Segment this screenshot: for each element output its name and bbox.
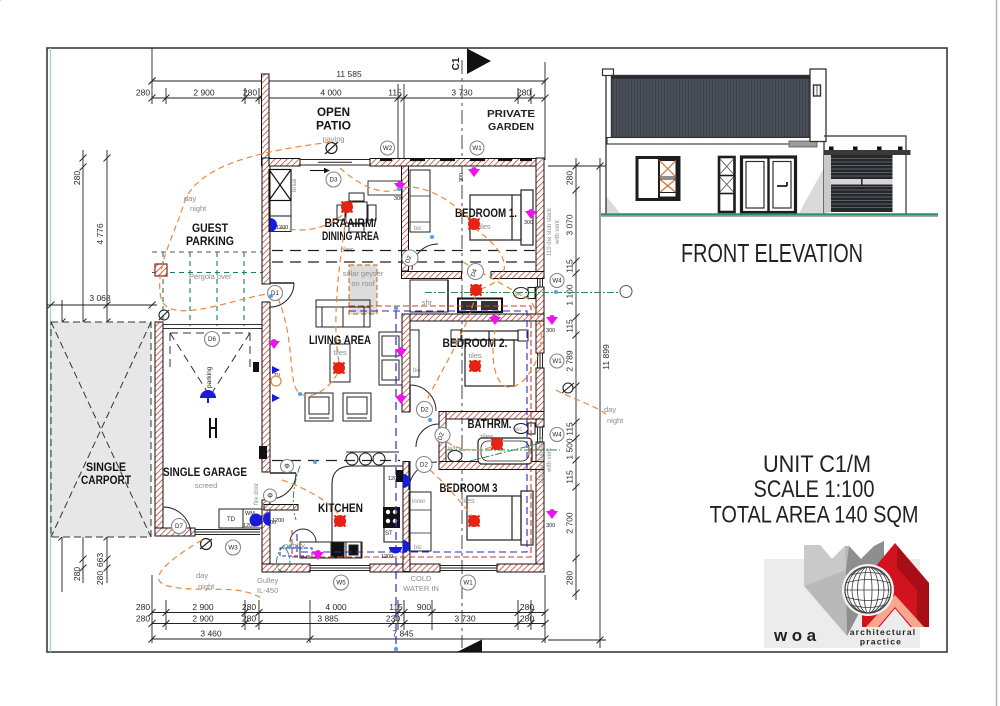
svg-text:W4: W4 <box>552 432 562 439</box>
svg-text:IL-450: IL-450 <box>257 586 278 595</box>
svg-text:TD: TD <box>227 517 236 523</box>
svg-text:280: 280 <box>136 88 150 98</box>
svg-text:4 000: 4 000 <box>320 88 342 98</box>
svg-text:115: 115 <box>565 319 575 333</box>
svg-text:1200: 1200 <box>276 225 288 231</box>
svg-text:screed: screed <box>195 481 218 490</box>
svg-text:110 dia stub stack: 110 dia stub stack <box>547 207 553 256</box>
svg-text:W3: W3 <box>228 545 238 552</box>
svg-text:day: day <box>196 571 208 580</box>
svg-text:4 000: 4 000 <box>325 602 347 612</box>
svg-text:115: 115 <box>388 88 402 98</box>
svg-text:280: 280 <box>517 88 531 98</box>
svg-text:bic: bic <box>413 368 421 374</box>
svg-text:115: 115 <box>565 259 575 273</box>
svg-text:280: 280 <box>520 613 534 623</box>
svg-text:PATIO: PATIO <box>316 119 351 133</box>
svg-text:BATHRM.: BATHRM. <box>468 417 512 431</box>
svg-text:pantry: pantry <box>284 541 305 550</box>
svg-text:1 500: 1 500 <box>565 438 575 460</box>
svg-text:280: 280 <box>242 602 256 612</box>
svg-text:300: 300 <box>459 173 465 182</box>
svg-text:OPEN: OPEN <box>317 105 350 119</box>
svg-text:SINGLE: SINGLE <box>86 460 126 474</box>
svg-text:CARPORT: CARPORT <box>81 473 132 487</box>
svg-text:1 100: 1 100 <box>565 284 575 306</box>
svg-text:D3: D3 <box>330 177 338 184</box>
svg-text:BEDROOM 1.: BEDROOM 1. <box>455 206 517 220</box>
svg-text:DINING AREA: DINING AREA <box>322 229 379 243</box>
svg-text:1200: 1200 <box>272 518 284 524</box>
svg-text:GUEST: GUEST <box>192 221 229 235</box>
svg-text:3 068: 3 068 <box>89 293 111 303</box>
svg-text:D2: D2 <box>420 462 428 469</box>
svg-text:architectural: architectural <box>850 627 917 637</box>
svg-text:bic: bic <box>414 545 422 551</box>
svg-text:practice: practice <box>860 637 902 647</box>
svg-text:3 070: 3 070 <box>565 214 575 236</box>
svg-text:W5: W5 <box>336 580 346 587</box>
svg-text:Pergola over: Pergola over <box>189 272 232 281</box>
svg-text:230: 230 <box>386 613 400 623</box>
svg-text:D2: D2 <box>421 407 429 414</box>
svg-text:W1: W1 <box>463 580 473 587</box>
svg-text:wc: wc <box>514 427 522 433</box>
svg-text:tiles: tiles <box>468 351 482 360</box>
svg-text:280: 280 <box>136 613 150 623</box>
svg-text:11 899: 11 899 <box>601 344 611 370</box>
svg-text:115: 115 <box>565 470 575 484</box>
svg-text:Φ: Φ <box>267 493 273 500</box>
svg-text:with vent: with vent <box>547 448 553 473</box>
svg-text:3 730: 3 730 <box>451 88 473 98</box>
svg-text:FRONT ELEVATION: FRONT ELEVATION <box>681 238 863 268</box>
svg-text:BRAAIRM/: BRAAIRM/ <box>325 216 378 230</box>
svg-text:1200: 1200 <box>243 523 255 529</box>
svg-text:with vent: with vent <box>555 220 561 245</box>
svg-text:SCALE 1:100: SCALE 1:100 <box>754 476 875 503</box>
svg-text:COLD: COLD <box>411 574 432 583</box>
svg-text:3 885: 3 885 <box>317 613 339 623</box>
svg-text:280: 280 <box>565 571 575 585</box>
svg-text:tiles: tiles <box>333 348 347 357</box>
svg-text:day: day <box>604 405 616 414</box>
svg-text:solar geyser: solar geyser <box>343 269 384 278</box>
svg-text:C1: C1 <box>451 57 462 70</box>
svg-text:280: 280 <box>565 171 575 185</box>
svg-text:WATER IN: WATER IN <box>403 584 439 593</box>
svg-text:W4: W4 <box>552 278 562 285</box>
svg-text:parking: parking <box>206 366 213 388</box>
svg-text:fire door: fire door <box>254 483 260 505</box>
svg-text:D6: D6 <box>208 336 216 343</box>
svg-text:110 dia stub stack: 110 dia stub stack <box>539 435 545 484</box>
svg-text:280: 280 <box>95 571 105 585</box>
svg-text:LIVING AREA: LIVING AREA <box>309 333 371 347</box>
svg-text:W1: W1 <box>552 358 562 365</box>
svg-text:900: 900 <box>417 602 431 612</box>
svg-text:woa: woa <box>773 626 821 645</box>
svg-text:BEDROOM 2.: BEDROOM 2. <box>443 336 508 350</box>
svg-text:11 585: 11 585 <box>336 69 362 79</box>
svg-text:night: night <box>607 416 624 425</box>
svg-text:3 730: 3 730 <box>454 613 476 623</box>
svg-text:2 700: 2 700 <box>565 512 575 534</box>
svg-text:2 900: 2 900 <box>193 88 215 98</box>
svg-text:300: 300 <box>546 328 555 334</box>
svg-text:GARDEN: GARDEN <box>488 121 534 133</box>
svg-text:300: 300 <box>546 523 555 529</box>
svg-text:SINGLE GARAGE: SINGLE GARAGE <box>163 465 247 479</box>
svg-text:W2: W2 <box>383 145 393 152</box>
svg-text:tiles: tiles <box>461 496 475 505</box>
svg-text:UNIT C1/M: UNIT C1/M <box>763 451 871 478</box>
svg-text:2 789: 2 789 <box>565 350 575 372</box>
svg-text:280: 280 <box>242 613 256 623</box>
svg-text:ST: ST <box>385 531 393 537</box>
svg-text:KITCHEN: KITCHEN <box>318 501 363 515</box>
svg-text:bic: bic <box>414 226 422 232</box>
svg-text:280: 280 <box>243 88 257 98</box>
svg-text:Gulley: Gulley <box>257 576 279 585</box>
svg-text:280: 280 <box>520 602 534 612</box>
svg-text:2 900: 2 900 <box>192 613 214 623</box>
svg-text:night: night <box>190 204 207 213</box>
svg-text:280: 280 <box>136 602 150 612</box>
svg-text:300: 300 <box>394 196 403 202</box>
svg-text:115: 115 <box>565 422 575 436</box>
svg-text:braai: braai <box>292 179 298 192</box>
svg-text:4 776: 4 776 <box>95 223 105 245</box>
svg-text:2 900: 2 900 <box>192 602 214 612</box>
svg-text:TOTAL AREA 140 SQM: TOTAL AREA 140 SQM <box>710 502 919 529</box>
svg-text:3 460: 3 460 <box>200 629 222 639</box>
svg-text:on roof: on roof <box>351 279 375 288</box>
svg-text:PRIVATE: PRIVATE <box>487 108 535 120</box>
svg-text:inner: inner <box>412 499 425 505</box>
svg-text:W1: W1 <box>472 145 482 152</box>
svg-text:300: 300 <box>524 220 533 226</box>
svg-text:663: 663 <box>95 553 105 567</box>
svg-text:tiles: tiles <box>340 245 354 254</box>
svg-text:280: 280 <box>72 171 82 185</box>
svg-text:D7: D7 <box>175 523 183 530</box>
svg-text:PARKING: PARKING <box>186 234 234 248</box>
svg-text:Φ: Φ <box>284 464 290 471</box>
svg-text:1200: 1200 <box>381 554 393 560</box>
svg-text:280: 280 <box>72 567 82 581</box>
